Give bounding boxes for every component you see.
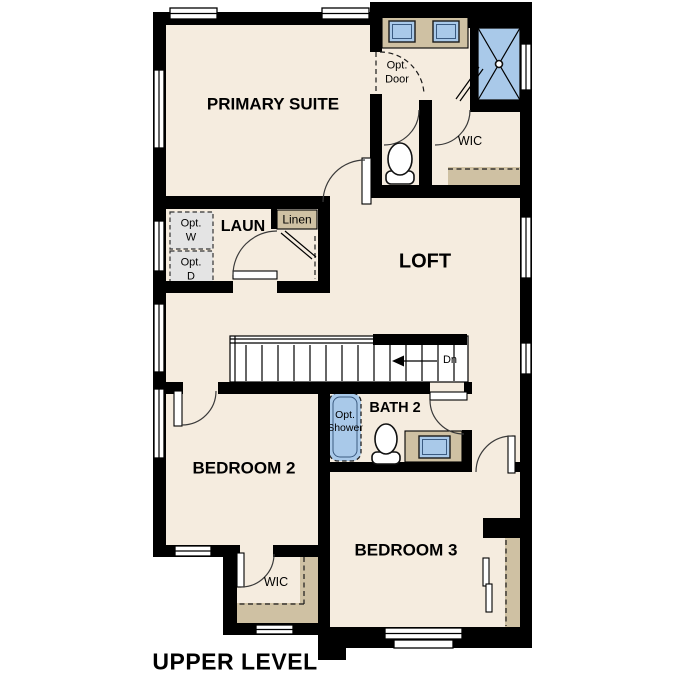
plan-title: UPPER LEVEL bbox=[152, 648, 317, 677]
label-opt-dryer: Opt. D bbox=[181, 256, 202, 284]
primary-toilet bbox=[386, 143, 414, 184]
label-opt-door-line1: Opt. bbox=[385, 59, 409, 73]
label-bedroom2: BEDROOM 2 bbox=[193, 457, 296, 478]
label-opt-washer: Opt. W bbox=[181, 217, 202, 245]
label-opt-washer-line2: W bbox=[181, 231, 202, 245]
label-opt-door: Opt. Door bbox=[385, 59, 409, 87]
label-opt-door-line2: Door bbox=[385, 73, 409, 87]
label-primary-suite: PRIMARY SUITE bbox=[203, 93, 343, 114]
label-opt-shower-line2: Shower bbox=[327, 422, 363, 435]
label-linen: Linen bbox=[282, 213, 311, 228]
label-primary-wic: WIC bbox=[458, 134, 482, 150]
label-opt-dryer-line2: D bbox=[181, 270, 202, 284]
label-bedroom3: BEDROOM 3 bbox=[355, 539, 458, 560]
primary-sink-right bbox=[433, 21, 459, 42]
label-bedroom2-wic: WIC bbox=[264, 575, 288, 591]
label-laundry: LAUN bbox=[221, 217, 265, 237]
label-opt-washer-line1: Opt. bbox=[181, 217, 202, 231]
floorplan-canvas: PRIMARY SUITE LOFT LAUN Linen WIC BATH 2… bbox=[0, 0, 687, 687]
label-loft: LOFT bbox=[399, 250, 451, 275]
primary-wic-shelf bbox=[448, 167, 520, 185]
label-opt-shower: Opt. Shower bbox=[327, 409, 363, 435]
primary-shower bbox=[478, 28, 520, 100]
label-opt-shower-line1: Opt. bbox=[327, 409, 363, 422]
label-opt-dryer-line1: Opt. bbox=[181, 256, 202, 270]
bath2-sink bbox=[419, 436, 450, 458]
label-bath2: BATH 2 bbox=[369, 399, 420, 417]
bedroom3-closet-shelf bbox=[505, 538, 520, 628]
floorplan-drawing bbox=[0, 0, 687, 687]
label-stairs-down: Dn bbox=[443, 354, 457, 368]
primary-sink-left bbox=[389, 21, 415, 42]
